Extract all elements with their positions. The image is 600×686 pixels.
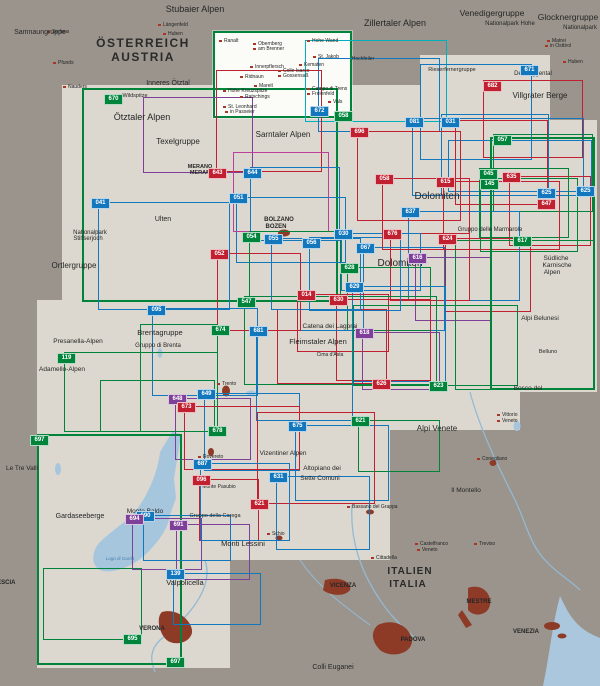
town-label: Nauders [68, 84, 87, 90]
sheet-number-badge[interactable]: 681 [249, 326, 268, 337]
region-label: BOLZANO [264, 217, 294, 223]
region-label: Gruppo di Brenta [135, 343, 181, 349]
region-label: Rieserfernergruppe [428, 67, 475, 73]
sheet-number-badge[interactable]: 695 [123, 634, 142, 645]
region-label: Ötztaler Alpen [114, 112, 171, 122]
sheet-number-badge[interactable]: 095 [147, 305, 166, 316]
region-label: ITALIA [389, 579, 426, 590]
town-dot [158, 24, 161, 27]
region-label: Gardaseeberge [56, 513, 105, 520]
sheet-number-badge[interactable]: 674 [211, 325, 230, 336]
town-label: Ratschings [245, 94, 270, 100]
region-label: Presanella-Alpen [53, 338, 103, 345]
region-label: Inneres Ötztal [146, 80, 190, 87]
sheet-number-badge[interactable]: 014 [297, 290, 316, 301]
town-label: Pfunds [58, 60, 74, 66]
city-venezia-lido [558, 634, 567, 639]
region-label: Adamello-Alpen [39, 366, 85, 373]
sheet-number-badge[interactable]: 081 [405, 117, 424, 128]
sheet-number-badge[interactable]: 616 [408, 253, 427, 264]
region-label: Catena dei Lagorai [303, 323, 358, 330]
city-venezia [544, 622, 560, 630]
region-label: Texelgruppe [156, 137, 200, 146]
sheet-number-badge[interactable]: 626 [372, 379, 391, 390]
sheet-number-badge[interactable]: 615 [436, 177, 455, 188]
sheet-number-badge[interactable]: 145 [480, 179, 499, 190]
town-dot [253, 43, 256, 46]
sheet-number-badge[interactable]: 697 [166, 657, 185, 668]
region-label: AUSTRIA [111, 50, 175, 64]
sheet-number-badge[interactable]: 687 [193, 459, 212, 470]
town-label: Huben [568, 59, 583, 65]
sheet-number-badge[interactable]: 647 [537, 199, 556, 210]
town-label: Veneto [502, 418, 518, 424]
sheet-number-badge[interactable]: 625 [576, 186, 595, 197]
town-dot [313, 56, 316, 59]
region-label: VICENZA [330, 583, 356, 589]
town-dot [477, 458, 480, 461]
sheet-number-badge[interactable]: 618 [355, 328, 374, 339]
sheet-number-badge[interactable]: 671 [520, 65, 539, 76]
town-dot [253, 48, 256, 51]
region-label: Monti Lessini [221, 539, 265, 548]
region-label: BOZEN [266, 224, 287, 230]
sheet-number-badge[interactable]: 635 [502, 172, 521, 183]
region-label: Cima d'Asta [317, 352, 344, 358]
region-label: Nationalpark Hohe [485, 21, 535, 27]
sheet-number-badge[interactable]: 673 [177, 402, 196, 413]
map-canvas: RanaltObernbergam BrennerHohe WandSt. Ja… [0, 0, 600, 686]
town-dot [299, 64, 302, 67]
town-label: in Passeier [230, 109, 255, 115]
map-sheet-outline[interactable] [43, 568, 142, 640]
town-dot [328, 101, 331, 104]
region-label: PADOVA [401, 637, 426, 643]
town-dot [254, 85, 257, 88]
sheet-number-badge[interactable]: 031 [441, 117, 460, 128]
sheet-number-badge[interactable]: 625 [537, 188, 556, 199]
town-label: Conegliano [482, 456, 507, 462]
sheet-number-badge[interactable]: 055 [264, 234, 283, 245]
town-dot [474, 543, 477, 546]
region-label: Lago di Garda [106, 556, 135, 561]
region-label: Vizentiner Alpen [260, 450, 307, 457]
region-label: Zillertaler Alpen [364, 18, 426, 28]
town-dot [223, 90, 226, 93]
town-label: Vals [333, 99, 342, 105]
town-label: am Brenner [258, 46, 284, 52]
sheet-number-badge[interactable]: 624 [438, 234, 457, 245]
region-label: Ortlergruppe [52, 261, 97, 270]
sheet-number-badge[interactable]: 682 [483, 81, 502, 92]
region-label: ITALIEN [387, 566, 432, 577]
sheet-number-badge[interactable]: 058 [375, 174, 394, 185]
region-label: Gruppo della Carega [189, 513, 240, 519]
region-label: Sette Comuni [300, 475, 339, 482]
sheet-number-badge[interactable]: 644 [243, 168, 262, 179]
region-label: Wildspitze [122, 93, 147, 99]
map-sheet-outline[interactable] [100, 380, 215, 432]
town-label: Ridnaun [245, 74, 264, 80]
town-label: Gossensaß [283, 73, 309, 79]
sheet-number-badge[interactable]: 691 [169, 520, 188, 531]
town-label: Freienfeld [312, 91, 334, 97]
town-label: Veneto [422, 547, 438, 553]
region-label: Südliche [544, 255, 569, 262]
sheet-number-badge[interactable]: 139 [166, 569, 185, 580]
region-label: Samnaungruppe [14, 29, 66, 36]
town-dot [217, 383, 220, 386]
map-sheet-outline[interactable] [249, 231, 341, 301]
region-label: Villgrater Berge [513, 91, 568, 100]
town-dot [225, 111, 228, 114]
town-dot [563, 61, 566, 64]
town-dot [545, 45, 548, 48]
sheet-number-badge[interactable]: 056 [302, 238, 321, 249]
region-label: Colli Euganei [312, 664, 353, 671]
sheet-number-badge[interactable]: 628 [340, 263, 359, 274]
sheet-number-badge[interactable]: 052 [210, 249, 229, 260]
region-label: Belluno [539, 349, 557, 355]
region-label: Brentagruppe [137, 328, 182, 337]
town-label: Ranalt [224, 38, 238, 44]
sheet-number-badge[interactable]: 621 [351, 416, 370, 427]
town-label: Treviso [479, 541, 495, 547]
town-dot [278, 75, 281, 78]
sheet-number-badge[interactable]: 694 [125, 514, 144, 525]
sheet-number-badge[interactable]: 547 [237, 297, 256, 308]
town-dot [347, 506, 350, 509]
sheet-number-badge[interactable]: 672 [310, 106, 329, 117]
region-label: ÖSTERREICH [96, 36, 190, 50]
region-label: VENEZIA [513, 629, 539, 635]
town-dot [415, 543, 418, 546]
region-label: BRESCIA [0, 580, 16, 586]
map-sheet-outline[interactable] [276, 476, 370, 550]
town-label: Schio [272, 531, 285, 537]
sheet-number-badge[interactable]: 623 [429, 381, 448, 392]
town-dot [223, 106, 226, 109]
town-dot [497, 414, 500, 417]
sheet-number-badge[interactable]: 041 [91, 198, 110, 209]
town-label: Längenfeld [163, 22, 188, 28]
sheet-number-badge[interactable]: 649 [197, 389, 216, 400]
sheet-number-badge[interactable]: 067 [356, 243, 375, 254]
town-label: Hohe Wand [312, 38, 338, 44]
map-sheet-outline[interactable] [353, 305, 518, 386]
town-dot [307, 88, 310, 91]
region-label: Ulten [155, 216, 171, 223]
region-label: Alpi Belunesi [521, 315, 559, 322]
region-label: Alpen [544, 269, 561, 276]
town-dot [267, 533, 270, 536]
sheet-number-badge[interactable]: 045 [479, 169, 498, 180]
region-label: MESTRE [466, 599, 491, 605]
town-label: Trento [222, 381, 236, 387]
town-label: St. Jakob [318, 54, 339, 60]
region-label: Hochfeiler [352, 56, 375, 62]
town-dot [417, 549, 420, 552]
town-label: Cittadella [376, 555, 397, 561]
town-dot [53, 62, 56, 65]
region-label: Glocknergruppe [538, 12, 598, 22]
town-dot [307, 93, 310, 96]
sheet-number-badge[interactable]: 670 [104, 94, 123, 105]
town-label: Bassano del Grappa [352, 504, 398, 510]
region-label: Bosco del [514, 385, 543, 392]
sheet-number-badge[interactable]: 030 [334, 229, 353, 240]
region-label: Gruppo delle Marmarole [458, 227, 523, 233]
town-dot [240, 76, 243, 79]
region-label: Altopiano dei [303, 465, 341, 472]
map-sheet-outline[interactable] [176, 524, 250, 580]
sheet-number-badge[interactable]: 054 [242, 232, 261, 243]
town-dot [278, 70, 281, 73]
sheet-number-badge[interactable]: 621 [250, 499, 269, 510]
sheet-number-badge[interactable]: 676 [383, 229, 402, 240]
sheet-number-badge[interactable]: 630 [329, 295, 348, 306]
sheet-number-badge[interactable]: 637 [401, 207, 420, 218]
sheet-number-badge[interactable]: 697 [30, 435, 49, 446]
region-label: Stubaier Alpen [166, 4, 225, 14]
town-dot [250, 66, 253, 69]
town-dot [371, 557, 374, 560]
city-mestre [458, 587, 490, 628]
sheet-number-badge[interactable]: 696 [350, 127, 369, 138]
region-label: Fleimstaler Alpen [289, 337, 347, 346]
town-label: in Osttirol [550, 43, 571, 49]
sheet-number-badge[interactable]: 119 [57, 353, 76, 364]
region-label: VERONA [139, 626, 165, 632]
town-dot [63, 86, 66, 89]
region-label: Sarntaler Alpen [256, 130, 311, 139]
town-dot [497, 420, 500, 423]
sheet-number-badge[interactable]: 096 [192, 475, 211, 486]
sheet-number-badge[interactable]: 617 [513, 236, 532, 247]
town-dot [198, 456, 201, 459]
town-dot [547, 40, 550, 43]
region-label: Dolomiten [414, 191, 459, 202]
sheet-number-badge[interactable]: 631 [269, 472, 288, 483]
sheet-number-badge[interactable]: 629 [345, 282, 364, 293]
sheet-number-badge[interactable]: 678 [208, 426, 227, 437]
town-dot [219, 40, 222, 43]
region-label: Il Montello [451, 487, 481, 494]
region-label: Karnische [543, 262, 572, 269]
sheet-number-badge[interactable]: 643 [208, 168, 227, 179]
town-dot [163, 33, 166, 36]
sheet-number-badge[interactable]: 058 [334, 111, 353, 122]
region-label: Nationalpark [563, 25, 597, 31]
region-label: Venedigergruppe [460, 8, 525, 18]
sheet-number-badge[interactable]: 051 [229, 193, 248, 204]
region-label: Stilfserjoch [73, 236, 102, 242]
sheet-number-badge[interactable]: 675 [288, 421, 307, 432]
sheet-number-badge[interactable]: 057 [493, 135, 512, 146]
region-label: Le Tre Valli [6, 465, 38, 472]
town-dot [240, 96, 243, 99]
region-label: Alpi Venete [417, 424, 457, 433]
town-dot [307, 40, 310, 43]
